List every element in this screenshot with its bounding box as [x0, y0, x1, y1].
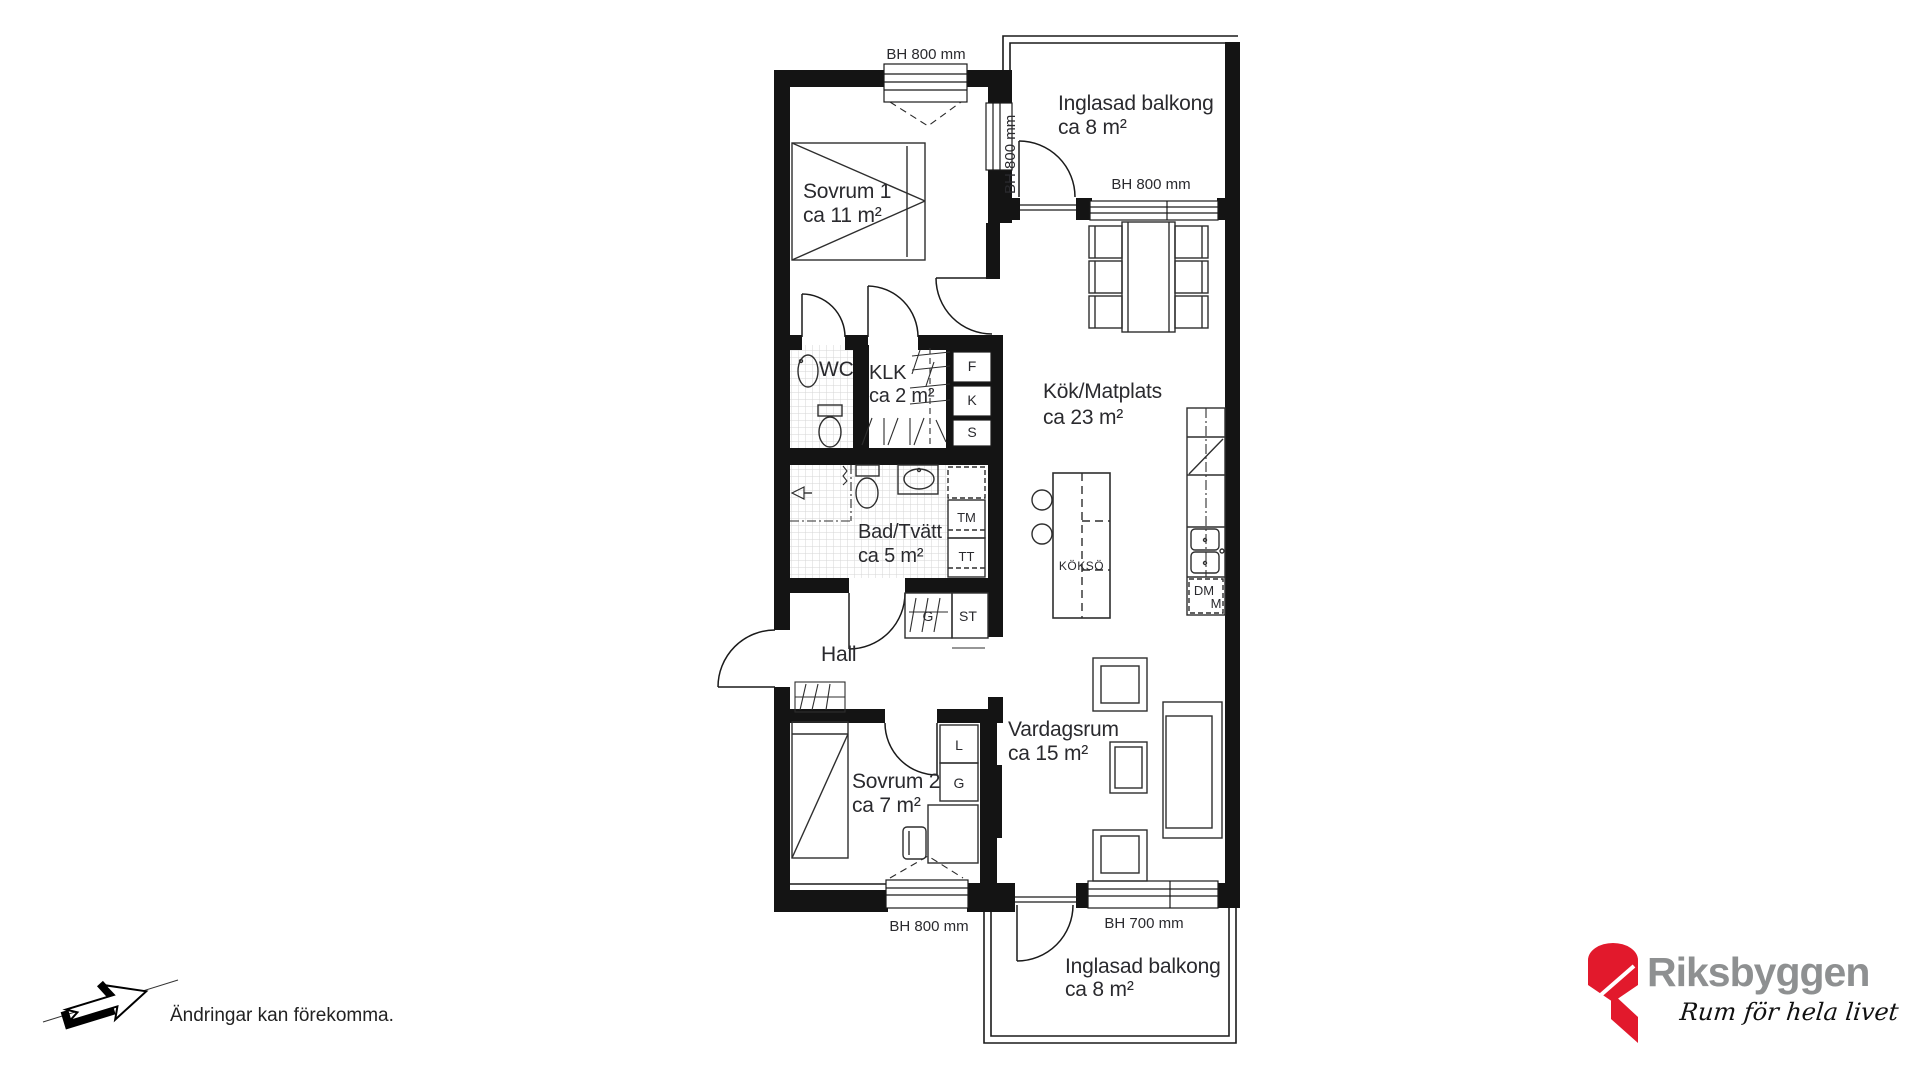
- closet-label-g-sovrum2: G: [939, 775, 979, 791]
- room-area: ca 2 m²: [869, 385, 934, 408]
- window-label-kok-top: BH 800 mm: [1110, 176, 1192, 193]
- room-name: Kök/Matplats: [1043, 379, 1162, 405]
- appliance-label-m: M: [1206, 596, 1226, 611]
- island-label-kokso: KÖKSÖ: [1053, 559, 1110, 573]
- closet-label-l: L: [939, 737, 979, 753]
- window-label-sovrum2-bottom: BH 800 mm: [884, 918, 974, 935]
- room-label-hall: Hall: [821, 643, 856, 667]
- window-label-vardagsrum-bottom: BH 700 mm: [1099, 915, 1189, 932]
- room-name: KLK: [869, 362, 934, 385]
- room-label-balkong-top: Inglasad balkong ca 8 m²: [1058, 92, 1214, 140]
- room-name: Inglasad balkong: [1065, 955, 1221, 978]
- closet-label-f: F: [953, 358, 991, 374]
- window-label-balkong-side: BH 800 mm: [1002, 115, 1019, 194]
- room-area: ca 15 m²: [1008, 742, 1119, 766]
- room-label-vardagsrum: Vardagsrum ca 15 m²: [1008, 718, 1119, 766]
- room-label-balkong-bottom: Inglasad balkong ca 8 m²: [1065, 955, 1221, 1001]
- room-area: ca 11 m²: [803, 204, 891, 228]
- appliance-label-tm: TM: [948, 510, 985, 525]
- brand-name: Riksbyggen: [1647, 952, 1869, 992]
- room-name: Sovrum 1: [803, 180, 891, 204]
- room-area: ca 8 m²: [1058, 116, 1214, 140]
- room-area: ca 7 m²: [852, 794, 940, 818]
- closet-label-k: K: [953, 392, 991, 408]
- room-area: ca 8 m²: [1065, 978, 1221, 1001]
- room-label-bad: Bad/Tvätt ca 5 m²: [858, 520, 942, 568]
- room-label-klk: KLK ca 2 m²: [869, 362, 934, 408]
- closet-label-g-hall: G: [908, 608, 948, 624]
- riksbyggen-logo-icon: [1588, 943, 1638, 1043]
- room-name: Sovrum 2: [852, 770, 940, 794]
- floorplan-canvas: BH 800 mm Inglasad balkong ca 8 m² BH 80…: [0, 0, 1920, 1080]
- room-label-wc: WC: [819, 358, 854, 382]
- room-area: ca 23 m²: [1043, 405, 1162, 431]
- window-label-sovrum1-top: BH 800 mm: [886, 46, 966, 63]
- room-label-sovrum2: Sovrum 2 ca 7 m²: [852, 770, 940, 818]
- disclaimer-text: Ändringar kan förekomma.: [170, 1005, 394, 1027]
- room-area: ca 5 m²: [858, 544, 942, 568]
- room-label-sovrum1: Sovrum 1 ca 11 m²: [803, 180, 891, 228]
- room-name: Bad/Tvätt: [858, 520, 942, 544]
- room-name: Inglasad balkong: [1058, 92, 1214, 116]
- room-name: Vardagsrum: [1008, 718, 1119, 742]
- north-arrow-icon: [43, 971, 178, 1033]
- room-label-kok: Kök/Matplats ca 23 m²: [1043, 379, 1162, 431]
- closet-label-s: S: [953, 424, 991, 440]
- closet-label-st: ST: [948, 608, 988, 624]
- appliance-label-tt: TT: [948, 549, 985, 564]
- brand-tagline: Rum för hela livet: [1679, 998, 1900, 1026]
